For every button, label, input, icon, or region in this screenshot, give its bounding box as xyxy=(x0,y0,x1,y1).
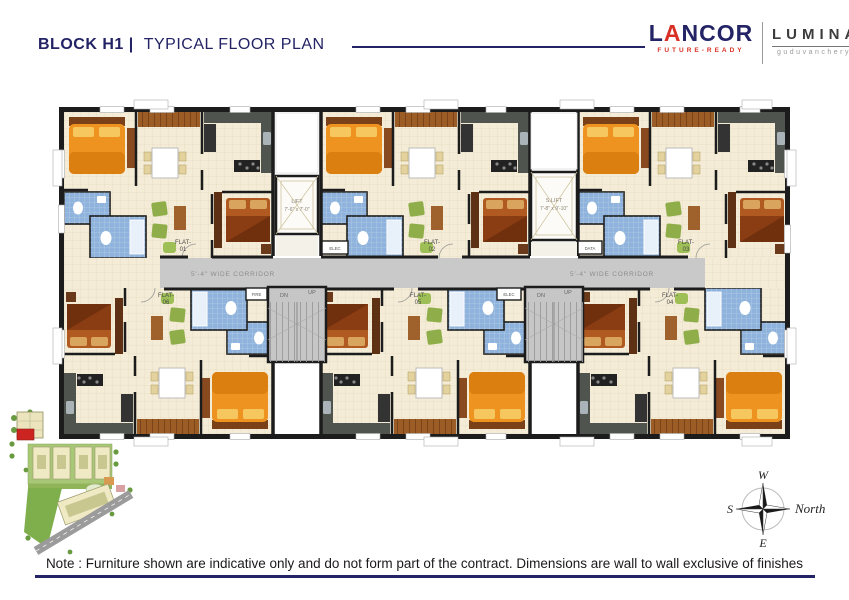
stair2-dn: DN xyxy=(537,293,545,299)
flat3-prefix: FLAT- xyxy=(678,240,694,246)
stair2-up: UP xyxy=(564,290,572,296)
fire-box-label: FIRE xyxy=(252,292,262,297)
elec-box2-label: ELEC xyxy=(503,292,514,297)
lift1-size: 7'-6" x 7'-0" xyxy=(284,207,309,213)
flat2-prefix: FLAT- xyxy=(424,240,440,246)
flat1-number: 01 xyxy=(180,247,187,253)
compass: W S E North xyxy=(727,468,825,550)
flat5-prefix: FLAT- xyxy=(410,293,426,299)
compass-south: S xyxy=(727,502,733,516)
disclaimer-note: Note : Furniture shown are indicative on… xyxy=(0,556,849,571)
lift2-size: 7'-8" x 9'-10" xyxy=(540,206,568,212)
stairwell-2: DN UP xyxy=(525,287,583,362)
stairwell-1: DN UP xyxy=(268,287,326,362)
flat4-number: 04 xyxy=(667,300,674,306)
stair1-up: UP xyxy=(308,290,316,296)
elec-box-label: ELEC xyxy=(329,246,340,251)
lift-1: LIFT 7'-6" x 7'-0" xyxy=(276,113,318,256)
corridor-label-left: 5'-4" WIDE CORRIDOR xyxy=(191,271,275,278)
highlighted-block-h1 xyxy=(17,429,34,440)
compass-north: North xyxy=(794,501,825,516)
lift1-name: LIFT xyxy=(291,199,303,205)
floor-plan-poster: BLOCK H1 |TYPICAL FLOOR PLAN LANCOR FUTU… xyxy=(0,0,849,600)
corridor: 5'-4" WIDE CORRIDOR 5'-4" WIDE CORRIDOR xyxy=(64,257,787,289)
stretcher-lift: S.LIFT 7'-8" x 9'-10" xyxy=(531,113,577,256)
lift2-name: S.LIFT xyxy=(546,198,563,204)
flat2-number: 02 xyxy=(429,247,436,253)
flat6-number: 06 xyxy=(163,300,170,306)
flat4-prefix: FLAT- xyxy=(662,293,678,299)
compass-east: E xyxy=(758,536,767,550)
flat6-prefix: FLAT- xyxy=(158,293,174,299)
footer-rule xyxy=(35,575,815,578)
stair1-dn: DN xyxy=(280,293,288,299)
flat3-number: 03 xyxy=(683,247,690,253)
compass-west: W xyxy=(758,468,769,482)
flat1-prefix: FLAT- xyxy=(175,240,191,246)
corridor-label-right: 5'-4" WIDE CORRIDOR xyxy=(570,271,654,278)
flat5-number: 05 xyxy=(415,300,422,306)
data-box-label: DATA xyxy=(585,246,596,251)
floor-plan-drawing: 5'-4" WIDE CORRIDOR 5'-4" WIDE CORRIDOR … xyxy=(0,0,849,600)
